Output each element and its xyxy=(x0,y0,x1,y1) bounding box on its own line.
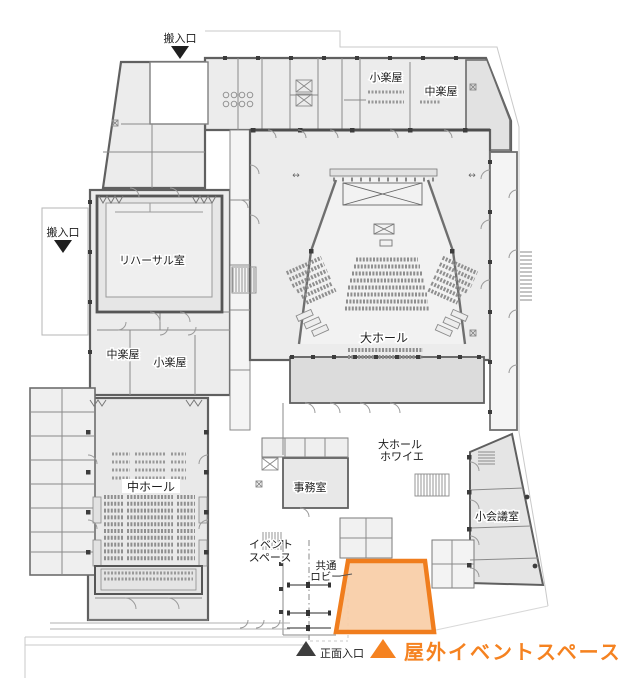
event-space-label-line2: スペース xyxy=(249,551,292,564)
office-label: 事務室 xyxy=(294,480,327,494)
stage-width-arrow: ↔ xyxy=(292,171,300,181)
foyer-band xyxy=(290,357,484,403)
loading-dock-top xyxy=(150,62,208,124)
loading-entrance-left-label: 搬入口 xyxy=(47,225,80,239)
small-dressing-room-top-label: 小楽屋 xyxy=(370,71,403,84)
legend-label: 屋外イベントスペース xyxy=(404,640,622,664)
large-hall-foyer-label-line1: 大ホール xyxy=(378,437,422,451)
large-hall-foyer-label-line2: ホワイエ xyxy=(380,450,424,463)
main-entrance-label: 正面入口 xyxy=(320,647,364,660)
rehearsal-room-label: リハーサル室 xyxy=(119,253,185,267)
loading-entrance-top-label: 搬入口 xyxy=(164,31,197,45)
building-blocks xyxy=(30,58,543,620)
floor-plan-page: ↔ ↔ xyxy=(0,0,627,697)
outdoor-event-space-legend: 屋外イベントスペース xyxy=(370,639,622,664)
medium-dressing-room-top-label: 中楽屋 xyxy=(425,85,458,98)
floor-plan: ↔ ↔ xyxy=(0,0,627,697)
common-lobby-label-line2: ロビー xyxy=(310,571,342,583)
event-space-label-line1: イベント xyxy=(249,538,293,551)
legend-triangle-icon xyxy=(370,639,396,658)
entrance-vestibule xyxy=(287,540,331,640)
stair-foyer xyxy=(415,474,449,496)
medium-hall-label: 中ホール xyxy=(127,479,175,494)
stage-rigging-bar xyxy=(330,169,437,176)
main-entrance-arrow-icon xyxy=(296,641,316,656)
medium-hall-stage xyxy=(95,566,202,594)
loading-entrance-top-arrow-icon xyxy=(171,46,189,59)
stage-width-arrow-2: ↔ xyxy=(468,171,476,181)
medium-dressing-room-mid-label: 中楽屋 xyxy=(107,348,140,361)
small-dressing-room-mid-label: 小楽屋 xyxy=(154,356,187,369)
stair-east-exterior xyxy=(520,252,532,300)
small-meeting-rooms-label: 小会議室 xyxy=(475,509,519,523)
east-corridor xyxy=(490,152,517,430)
large-hall-label: 大ホール xyxy=(360,331,408,345)
outdoor-event-space-highlight xyxy=(336,561,434,632)
